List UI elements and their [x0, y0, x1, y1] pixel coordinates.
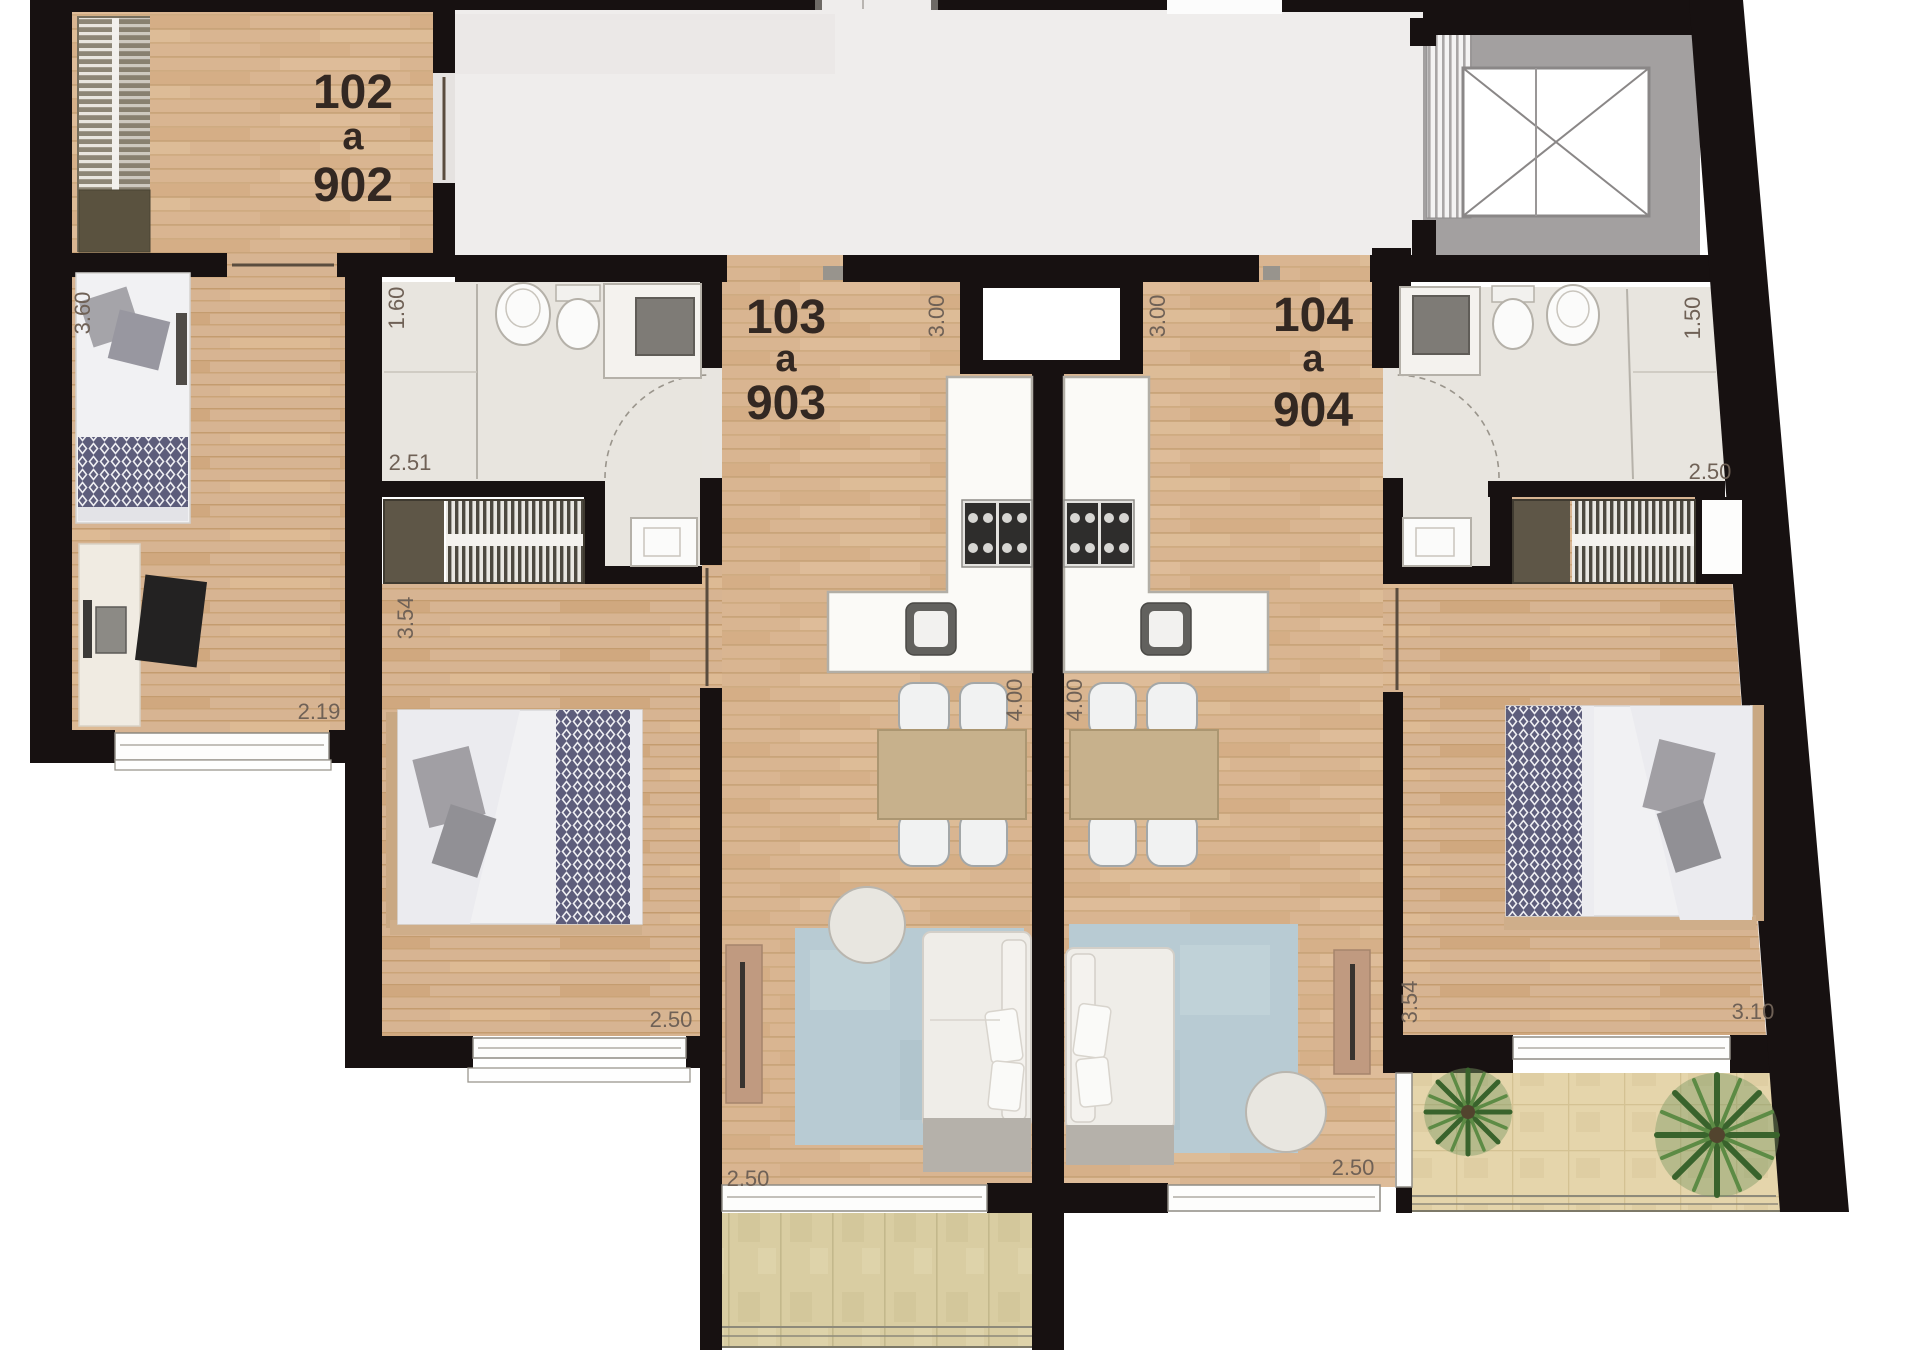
svg-text:102: 102 — [313, 66, 393, 119]
svg-text:2.50: 2.50 — [1332, 1155, 1375, 1180]
svg-text:902: 902 — [313, 159, 393, 212]
svg-text:104: 104 — [1273, 289, 1353, 342]
svg-text:103: 103 — [746, 291, 826, 344]
svg-text:a: a — [775, 338, 797, 380]
svg-text:1.50: 1.50 — [1680, 297, 1705, 340]
svg-text:3.60: 3.60 — [70, 292, 95, 335]
svg-text:2.50: 2.50 — [1689, 459, 1732, 484]
svg-text:2.50: 2.50 — [727, 1166, 770, 1191]
svg-text:3.10: 3.10 — [1732, 999, 1775, 1024]
svg-text:3.00: 3.00 — [924, 295, 949, 338]
svg-text:3.00: 3.00 — [1145, 295, 1170, 338]
svg-text:2.51: 2.51 — [389, 450, 432, 475]
svg-text:903: 903 — [746, 377, 826, 430]
svg-text:1.60: 1.60 — [384, 287, 409, 330]
svg-text:4.00: 4.00 — [1062, 679, 1087, 722]
svg-text:3.54: 3.54 — [393, 597, 418, 640]
svg-text:2.50: 2.50 — [650, 1007, 693, 1032]
svg-text:a: a — [1302, 338, 1324, 380]
svg-text:a: a — [342, 116, 364, 158]
svg-text:2.19: 2.19 — [298, 699, 341, 724]
svg-text:4.00: 4.00 — [1002, 679, 1027, 722]
svg-text:3.54: 3.54 — [1397, 981, 1422, 1024]
svg-text:904: 904 — [1273, 384, 1353, 437]
